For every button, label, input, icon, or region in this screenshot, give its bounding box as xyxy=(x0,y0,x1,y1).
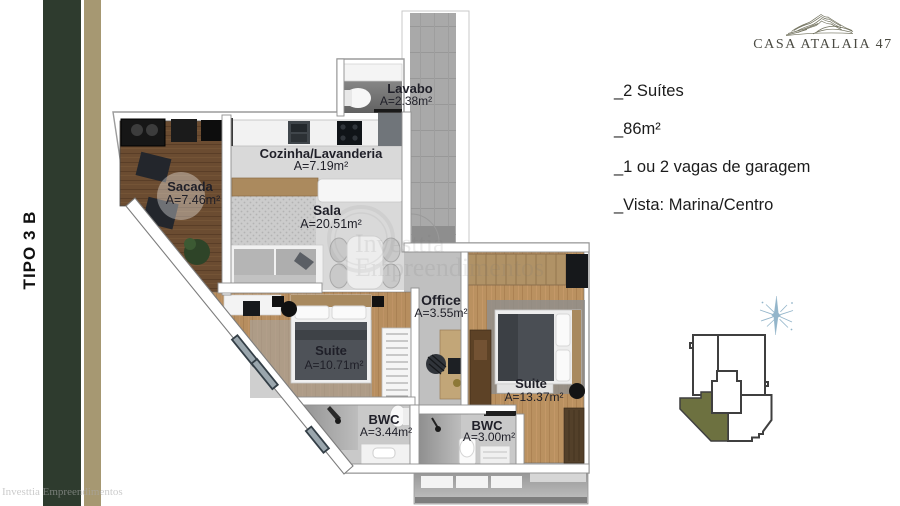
svg-text:A=10.71m²: A=10.71m² xyxy=(304,358,363,372)
svg-text:A=3.00m²: A=3.00m² xyxy=(463,430,515,444)
svg-text:Investtia Empreendimentos: Investtia Empreendimentos xyxy=(2,486,123,498)
svg-text:A=7.46m²: A=7.46m² xyxy=(166,193,221,207)
svg-text:Empreendimentos: Empreendimentos xyxy=(355,253,544,282)
svg-text:A=3.55m²: A=3.55m² xyxy=(414,306,467,320)
svg-text:Sacada: Sacada xyxy=(167,179,213,194)
svg-text:A=7.19m²: A=7.19m² xyxy=(294,159,349,173)
svg-text:A=13.37m²: A=13.37m² xyxy=(504,390,563,404)
svg-text:A=3.44m²: A=3.44m² xyxy=(360,425,412,439)
svg-text:Sala: Sala xyxy=(313,203,341,218)
svg-text:Suite: Suite xyxy=(315,343,347,358)
svg-text:A=2.38m²: A=2.38m² xyxy=(380,94,432,108)
svg-text:Suite: Suite xyxy=(515,376,547,391)
svg-text:A=20.51m²: A=20.51m² xyxy=(300,217,362,231)
